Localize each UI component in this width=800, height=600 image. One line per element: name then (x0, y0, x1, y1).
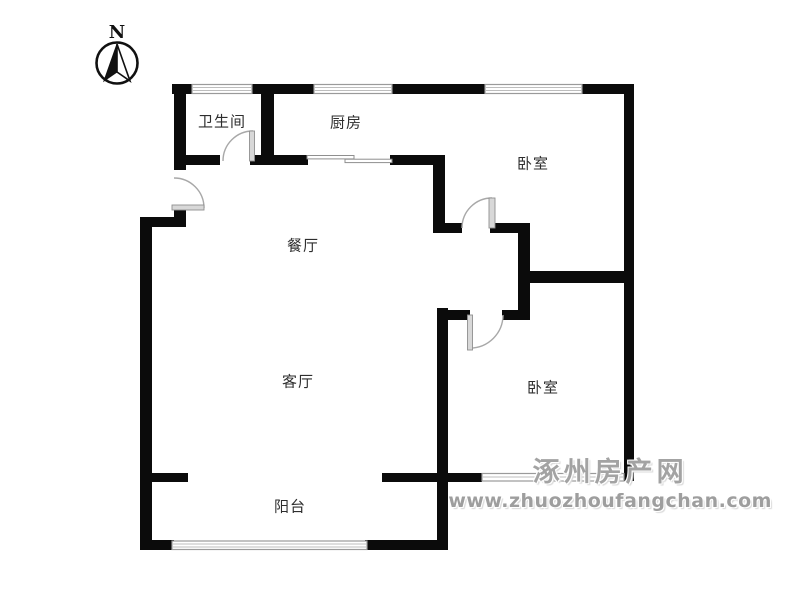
floorplan-canvas: N (0, 0, 800, 600)
north-arrow-icon: N (97, 22, 138, 84)
floorplan-drawing: N (0, 0, 800, 600)
wall-bathroom-kitchen (261, 94, 274, 165)
wall-balcony-left (140, 473, 188, 482)
wall-bottom-2 (365, 540, 448, 550)
window-bathroom (192, 85, 252, 94)
wall-bedrooms-divider (518, 271, 634, 283)
wall-bathroom-bottom-left (184, 155, 220, 165)
wall-balcony-right (382, 473, 482, 482)
window-bedroom-south (482, 474, 624, 482)
wall-bottom-1 (140, 540, 174, 550)
door-bedroom-south (468, 315, 504, 350)
room-label-kitchen: 厨房 (330, 112, 362, 133)
room-label-bedroom-north: 卧室 (517, 153, 549, 174)
wall-top-3 (390, 84, 487, 94)
room-label-balcony: 阳台 (274, 496, 306, 517)
wall-left-main (140, 217, 152, 550)
sliding-door-kitchen (307, 156, 392, 163)
wall-central-upper (433, 155, 445, 233)
door-bedroom-north (462, 198, 495, 228)
window-bedroom-north (485, 85, 582, 94)
compass-north-label: N (109, 22, 125, 43)
window-kitchen (314, 85, 392, 94)
window-balcony (172, 541, 367, 550)
wall-bathroom-bottom-right (250, 155, 308, 165)
wall-central-lower (437, 308, 448, 550)
room-label-dining: 餐厅 (287, 235, 319, 256)
room-label-living: 客厅 (282, 371, 314, 392)
wall-bedroom-north-left (433, 223, 462, 233)
door-bathroom (223, 131, 255, 161)
door-entry (172, 178, 204, 210)
wall-top-2 (250, 84, 316, 94)
room-label-bedroom-south: 卧室 (527, 377, 559, 398)
room-label-bathroom: 卫生间 (198, 111, 246, 132)
wall-bedroom-south-right (502, 310, 530, 320)
